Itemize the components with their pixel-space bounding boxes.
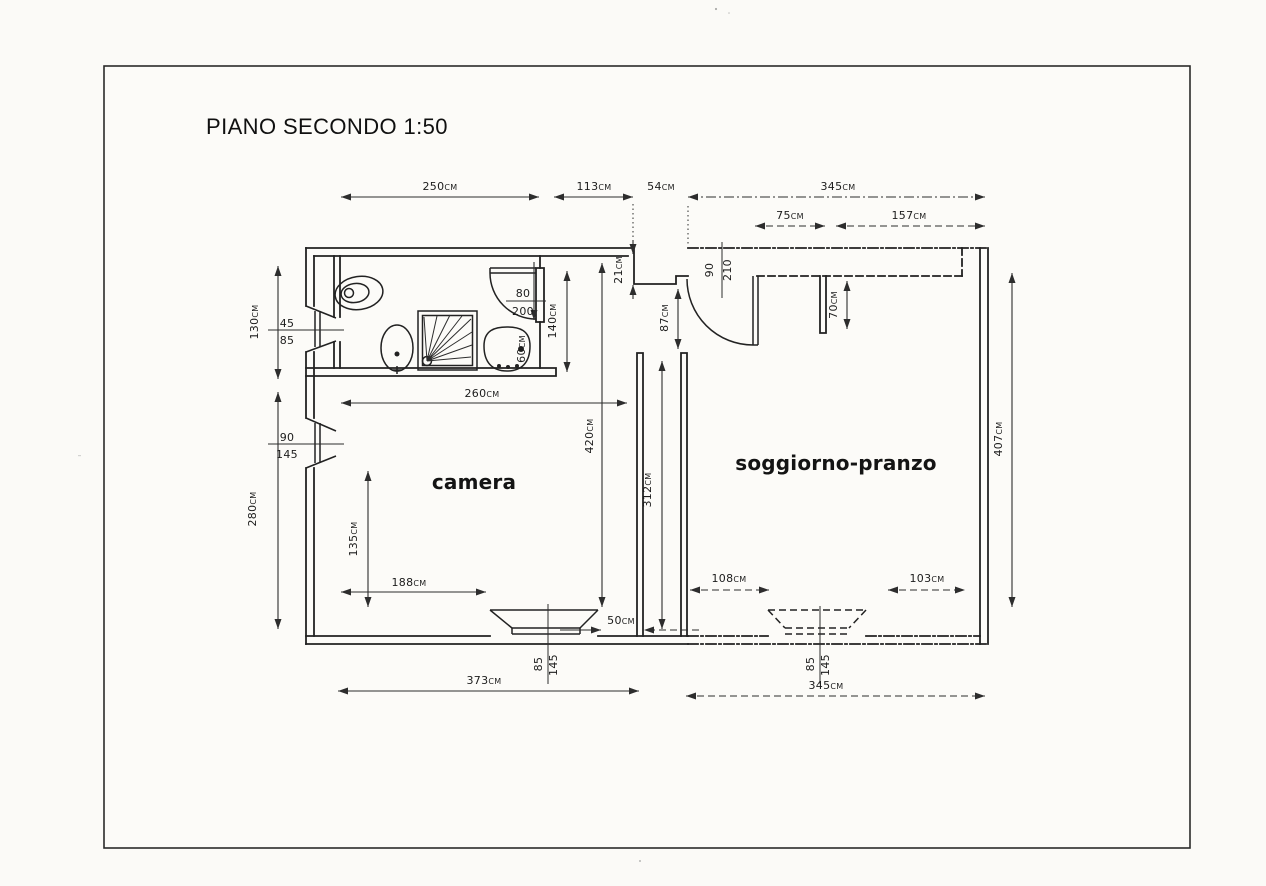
- win-bath-height: 85: [280, 334, 295, 347]
- win-camera-south-height: 145: [547, 654, 560, 676]
- dim-int-312: 312cm: [641, 473, 654, 508]
- win-camera-south-width: 85: [532, 657, 545, 672]
- dim-int-260: 260cm: [465, 387, 500, 400]
- dim-top-113: 113cm: [577, 180, 612, 193]
- door-bath-width: 80: [516, 287, 531, 300]
- floorplan-svg: PIANO SECONDO 1:50: [0, 0, 1266, 886]
- win-bath-width: 45: [280, 317, 295, 330]
- dim-left-130: 130cm: [248, 305, 261, 340]
- dim-bot-108: 108cm: [712, 572, 747, 585]
- dim-int-21: 21cm: [612, 256, 625, 284]
- door-bath-height: 200: [512, 305, 534, 318]
- door-entry-height: 210: [721, 259, 734, 281]
- dim-top-250: 250cm: [423, 180, 458, 193]
- dim-int-140: 140cm: [546, 304, 559, 339]
- dim-bot-373: 373cm: [467, 674, 502, 687]
- win-soggiorno-south-width: 85: [804, 657, 817, 672]
- room-label-soggiorno: soggiorno-pranzo: [735, 451, 937, 475]
- dim-left-280: 280cm: [246, 492, 259, 527]
- dim-bot-103: 103cm: [910, 572, 945, 585]
- win-camera-height: 145: [276, 448, 298, 461]
- dim-top-157: 157cm: [892, 209, 927, 222]
- dim-bot-345: 345cm: [809, 679, 844, 692]
- win-soggiorno-south-height: 145: [819, 654, 832, 676]
- dim-int-60: 60cm: [515, 335, 528, 363]
- dim-top-75: 75cm: [776, 209, 804, 222]
- dim-right-407: 407cm: [992, 422, 1005, 457]
- door-entry-width: 90: [703, 263, 716, 278]
- dim-bot-50: 50cm: [607, 614, 635, 627]
- dim-bot-188: 188cm: [392, 576, 427, 589]
- dim-int-70: 70cm: [827, 291, 840, 319]
- win-camera-width: 90: [280, 431, 295, 444]
- dim-int-420: 420cm: [583, 419, 596, 454]
- room-label-camera: camera: [432, 470, 516, 494]
- plan-title: PIANO SECONDO 1:50: [206, 114, 448, 139]
- dim-top-345: 345cm: [821, 180, 856, 193]
- dim-int-87: 87cm: [658, 304, 671, 332]
- dim-bot-135: 135cm: [347, 522, 360, 557]
- dim-top-54: 54cm: [647, 180, 675, 193]
